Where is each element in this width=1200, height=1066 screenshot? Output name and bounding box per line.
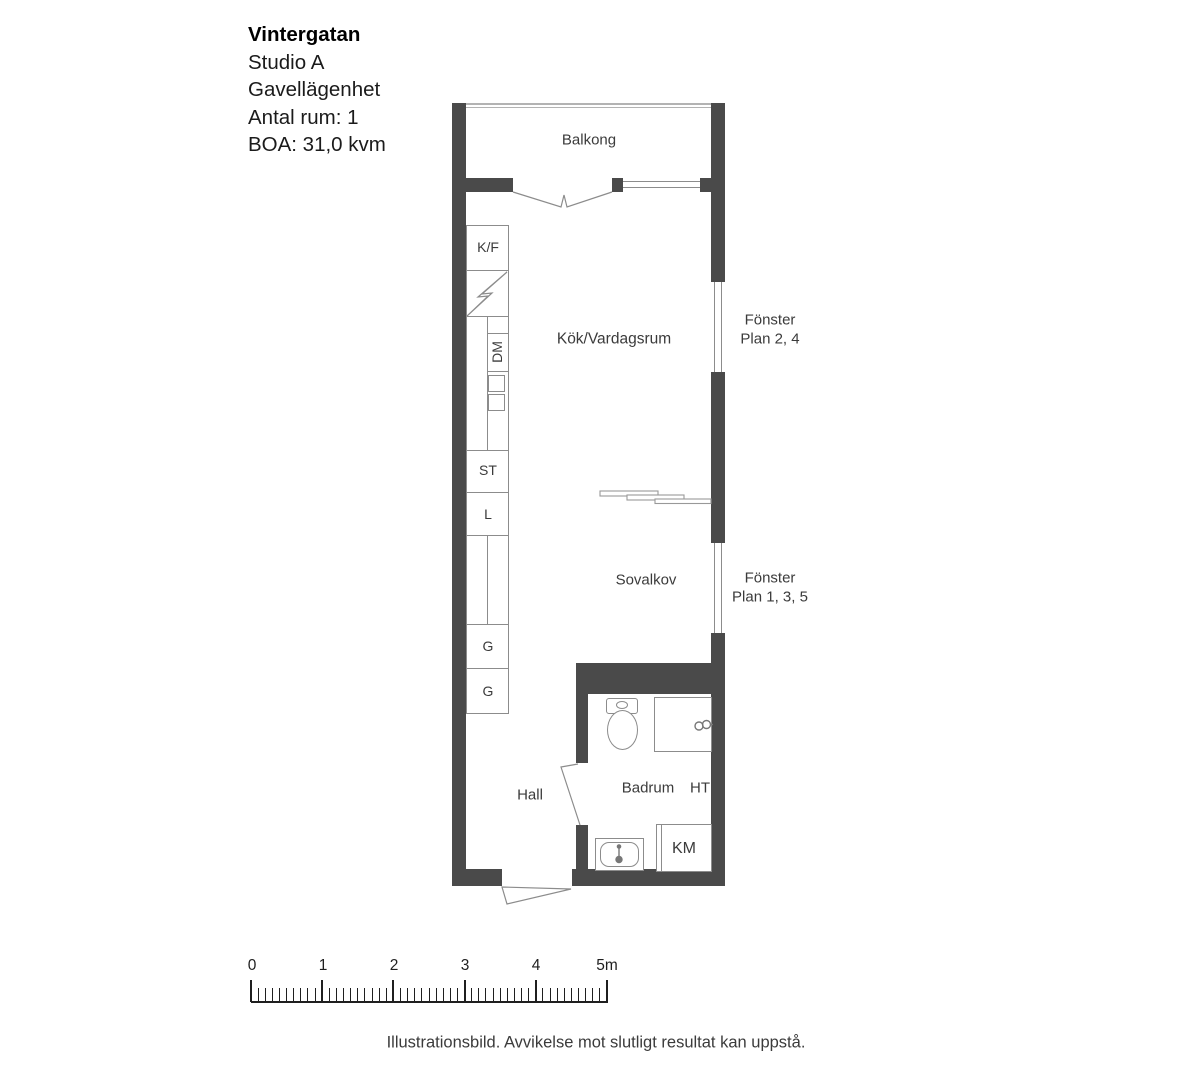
scale-minor-tick bbox=[571, 988, 572, 1002]
scale-minor-tick bbox=[307, 988, 308, 1002]
scale-minor-tick bbox=[407, 988, 408, 1002]
fixture-label-fridge-freezer: K/F bbox=[477, 240, 499, 254]
scale-minor-tick bbox=[542, 988, 543, 1002]
balcony-door-swing bbox=[513, 192, 612, 207]
hob-burner bbox=[488, 375, 505, 392]
hob-burner bbox=[488, 394, 505, 411]
scale-minor-tick bbox=[507, 988, 508, 1002]
disclaimer-text: Illustrationsbild. Avvikelse mot slutlig… bbox=[387, 1034, 806, 1053]
scale-minor-tick bbox=[578, 988, 579, 1002]
wall-bathroom-left bbox=[576, 825, 588, 869]
scale-minor-tick bbox=[557, 988, 558, 1002]
wall-bathroom-top bbox=[576, 663, 711, 694]
scale-minor-tick bbox=[293, 988, 294, 1002]
room-label-balcony: Balkong bbox=[562, 133, 616, 148]
shower-area bbox=[654, 697, 712, 752]
scale-minor-tick bbox=[457, 988, 458, 1002]
fixture-label-dishwasher: DM bbox=[490, 341, 504, 363]
apartment-type: Gavellägenhet bbox=[248, 76, 386, 104]
room-count: Antal rum: 1 bbox=[248, 104, 386, 132]
scale-label-1: 1 bbox=[319, 957, 328, 975]
scale-minor-tick bbox=[300, 988, 301, 1002]
washing-machine-edge bbox=[661, 824, 662, 872]
scale-baseline bbox=[251, 1001, 608, 1003]
scale-major-tick bbox=[392, 980, 394, 1002]
scale-major-tick bbox=[464, 980, 466, 1002]
fixture-label-wardrobe-2: G bbox=[483, 684, 494, 698]
unit-name: Studio A bbox=[248, 49, 386, 77]
scale-label-5m: 5m bbox=[596, 957, 618, 975]
scale-minor-tick bbox=[450, 988, 451, 1002]
scale-minor-tick bbox=[550, 988, 551, 1002]
electrical-panel-box bbox=[466, 270, 509, 317]
bathroom-door-swing bbox=[561, 764, 580, 825]
wall-balcony-front bbox=[700, 178, 711, 192]
scale-major-tick bbox=[250, 980, 252, 1002]
tall-cabinet-divider bbox=[487, 535, 488, 625]
window-label-upper: Plan 2, 4 bbox=[740, 332, 799, 347]
scale-minor-tick bbox=[599, 988, 600, 1002]
wall-bathroom-left bbox=[576, 694, 588, 763]
scale-minor-tick bbox=[500, 988, 501, 1002]
scale-minor-tick bbox=[436, 988, 437, 1002]
scale-minor-tick bbox=[386, 988, 387, 1002]
wall-balcony-front bbox=[452, 178, 513, 192]
scale-label-3: 3 bbox=[461, 957, 470, 975]
scale-minor-tick bbox=[471, 988, 472, 1002]
entrance-door-leaf bbox=[502, 887, 571, 904]
scale-minor-tick bbox=[421, 988, 422, 1002]
scale-minor-tick bbox=[478, 988, 479, 1002]
fixture-label-washing-machine: KM bbox=[672, 841, 696, 857]
room-label-hall: Hall bbox=[517, 788, 543, 803]
window-label-lower: Plan 1, 3, 5 bbox=[732, 590, 808, 605]
scale-minor-tick bbox=[336, 988, 337, 1002]
scale-minor-tick bbox=[265, 988, 266, 1002]
scale-minor-tick bbox=[414, 988, 415, 1002]
scale-minor-tick bbox=[493, 988, 494, 1002]
fixture-label-linen-cabinet: L bbox=[484, 507, 492, 521]
scale-minor-tick bbox=[564, 988, 565, 1002]
scale-minor-tick bbox=[485, 988, 486, 1002]
title-block: Vintergatan Studio A Gavellägenhet Antal… bbox=[248, 21, 386, 159]
scale-minor-tick bbox=[585, 988, 586, 1002]
scale-label-2: 2 bbox=[390, 957, 399, 975]
scale-minor-tick bbox=[357, 988, 358, 1002]
scale-minor-tick bbox=[272, 988, 273, 1002]
scale-minor-tick bbox=[329, 988, 330, 1002]
scale-minor-tick bbox=[400, 988, 401, 1002]
balcony-railing bbox=[452, 107, 725, 109]
floor-plan-canvas: Vintergatan Studio A Gavellägenhet Antal… bbox=[0, 0, 1200, 1066]
room-label-kitchen-living: Kök/Vardagsrum bbox=[557, 331, 671, 347]
scale-minor-tick bbox=[443, 988, 444, 1002]
room-label-sleeping-alcove: Sovalkov bbox=[616, 573, 677, 588]
scale-minor-tick bbox=[364, 988, 365, 1002]
window-label-upper: Fönster bbox=[745, 313, 796, 328]
scale-minor-tick bbox=[258, 988, 259, 1002]
balcony-railing bbox=[452, 103, 725, 105]
scale-minor-tick bbox=[514, 988, 515, 1002]
wall-bottom bbox=[452, 869, 502, 886]
scale-major-tick bbox=[606, 980, 608, 1002]
window-plan-1-3-5 bbox=[721, 543, 722, 633]
wall-right bbox=[711, 633, 725, 886]
balcony-window bbox=[623, 181, 700, 182]
sink-basin bbox=[600, 842, 639, 867]
scale-minor-tick bbox=[279, 988, 280, 1002]
window-plan-2-4 bbox=[721, 282, 722, 372]
window-plan-2-4 bbox=[714, 282, 715, 372]
project-title: Vintergatan bbox=[248, 21, 386, 49]
scale-minor-tick bbox=[315, 988, 316, 1002]
room-label-bathroom: Badrum bbox=[622, 781, 675, 796]
symbol-overlay bbox=[0, 0, 1200, 1066]
window-label-lower: Fönster bbox=[745, 571, 796, 586]
fixture-label-wardrobe-1: G bbox=[483, 639, 494, 653]
scale-minor-tick bbox=[528, 988, 529, 1002]
wall-balcony-front bbox=[612, 178, 623, 192]
scale-major-tick bbox=[321, 980, 323, 1002]
scale-minor-tick bbox=[343, 988, 344, 1002]
fixture-label-towel-dryer: HT bbox=[690, 781, 710, 796]
window-plan-1-3-5 bbox=[714, 543, 715, 633]
scale-major-tick bbox=[535, 980, 537, 1002]
scale-label-4: 4 bbox=[532, 957, 541, 975]
scale-minor-tick bbox=[592, 988, 593, 1002]
scale-minor-tick bbox=[372, 988, 373, 1002]
scale-minor-tick bbox=[286, 988, 287, 1002]
fixture-label-cleaning-cabinet: ST bbox=[479, 463, 497, 477]
wall-right bbox=[711, 372, 725, 543]
balcony-window bbox=[623, 187, 700, 188]
toilet-bowl bbox=[607, 710, 638, 750]
scale-minor-tick bbox=[429, 988, 430, 1002]
scale-minor-tick bbox=[350, 988, 351, 1002]
scale-label-0: 0 bbox=[248, 957, 257, 975]
scale-minor-tick bbox=[379, 988, 380, 1002]
sliding-partition bbox=[600, 491, 711, 504]
wall-left bbox=[452, 103, 466, 886]
toilet-flush-button bbox=[616, 701, 628, 709]
living-area: BOA: 31,0 kvm bbox=[248, 131, 386, 159]
scale-minor-tick bbox=[521, 988, 522, 1002]
wall-right bbox=[711, 103, 725, 282]
